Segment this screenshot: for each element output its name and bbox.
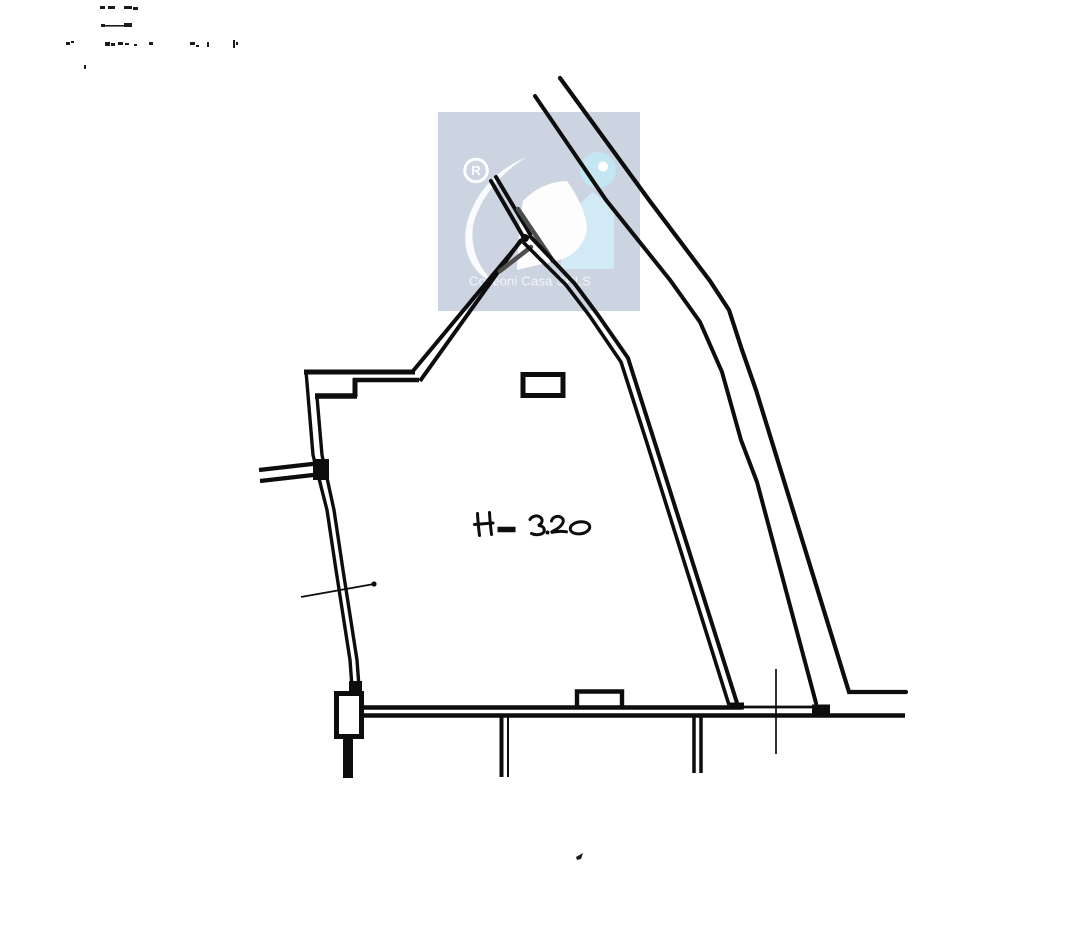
svg-text:R: R xyxy=(471,163,481,178)
